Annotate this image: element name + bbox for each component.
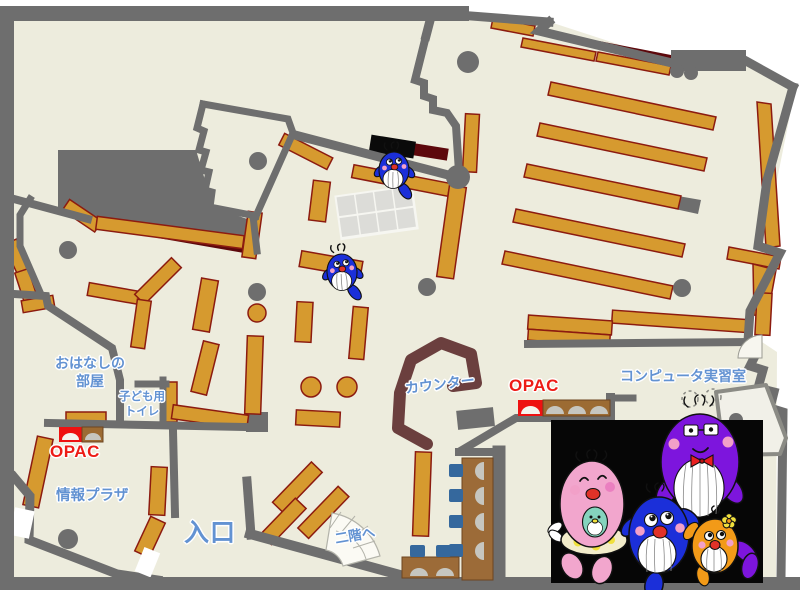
opac-label-right: OPAC xyxy=(509,375,559,397)
baby-whale-icon xyxy=(583,507,608,537)
opac-terminal-right xyxy=(518,400,610,416)
library-floor-map: おはなしの部屋 子ども用トイレ OPAC 情報プラザ 入口 二階へ カウンター … xyxy=(0,0,800,590)
story-room-label: おはなしの部屋 xyxy=(46,355,134,391)
computer-room-label: コンピュータ実習室 xyxy=(620,368,746,386)
opac-label-left: OPAC xyxy=(50,441,100,463)
info-plaza-label: 情報プラザ xyxy=(56,487,129,506)
entrance-label: 入口 xyxy=(184,517,236,550)
kids-toilet-label: 子ども用トイレ xyxy=(114,389,170,419)
opac-terminal-left xyxy=(59,427,103,442)
counter-side-desk xyxy=(456,407,495,430)
